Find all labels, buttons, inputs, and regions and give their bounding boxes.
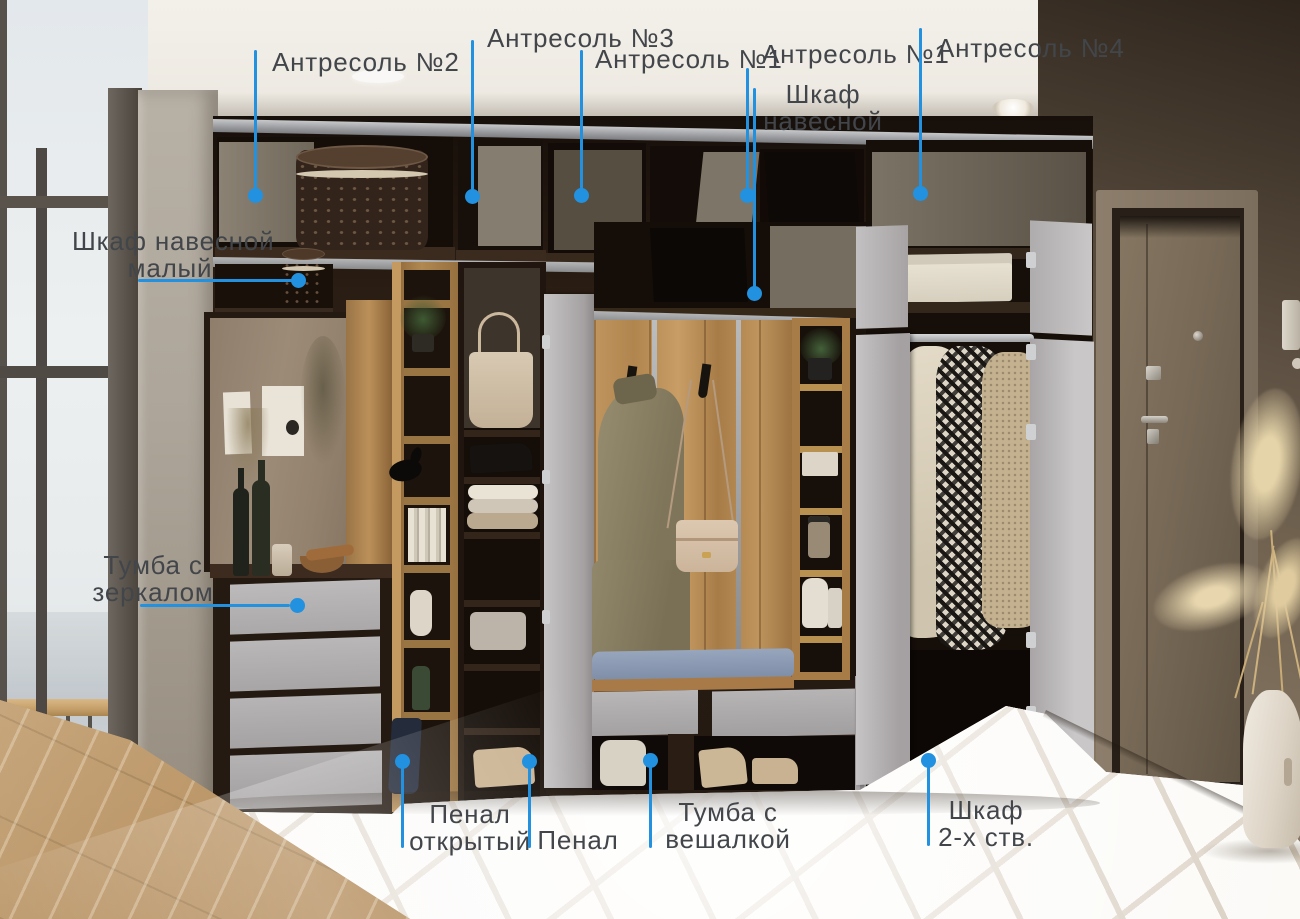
hatbox-small-lid — [282, 248, 325, 260]
cabinet-shelf-4 — [464, 600, 540, 607]
label-text: 2-х ств. — [938, 822, 1034, 852]
decor-bottle-1-neck — [238, 468, 244, 492]
shelf-vase-white — [410, 590, 432, 636]
folded-towels — [470, 612, 526, 650]
label-text: Антресоль №2 — [272, 47, 460, 77]
decor-bottle-2-neck — [258, 460, 265, 484]
knitwear-beige — [467, 513, 538, 529]
decor-bottle-2 — [252, 480, 270, 576]
wardrobe-door-right-upper[interactable] — [1030, 220, 1092, 335]
window-transom-mid — [0, 366, 110, 378]
wardrobe-door-left-upper[interactable] — [856, 225, 908, 329]
shelf-perfume — [808, 516, 830, 558]
callout-dot-shkaf-navesnoy-maly[interactable] — [291, 273, 306, 288]
label-text: Антресоль №4 — [937, 33, 1125, 63]
hanging-rail — [900, 334, 1034, 342]
wardrobe-hinge-2 — [1026, 344, 1036, 360]
label-text: Шкаф навесной — [72, 226, 274, 256]
wardrobe-hinge-4 — [1026, 632, 1036, 648]
beige-heels — [698, 746, 748, 789]
mirror-print-dot — [286, 420, 299, 435]
callout-line-penal — [528, 762, 531, 848]
metal-strip-2 — [736, 320, 741, 658]
callout-label-shkaf-navesnoy-maly: Шкаф навесной малый — [72, 228, 268, 282]
door-handle[interactable] — [1141, 416, 1168, 423]
wardrobe-door-left-lower[interactable] — [856, 333, 910, 785]
wall-round-fixture — [1292, 358, 1300, 369]
drawer-3[interactable] — [230, 693, 381, 748]
wardrobe-hinge-3 — [1026, 424, 1036, 440]
entry-door[interactable] — [1120, 216, 1240, 782]
label-text: открытый — [409, 826, 531, 856]
window-transom-top — [0, 196, 120, 208]
hall-shelf-b1 — [800, 384, 842, 391]
callout-label-penal: Пенал — [534, 827, 622, 854]
label-text: Пенал — [537, 825, 618, 855]
label-text: Антресоль №1 — [595, 44, 783, 74]
callout-label-shkaf-2h-stv: Шкаф 2-х ств. — [920, 797, 1052, 851]
callout-line-shkaf-navesnoy — [753, 88, 756, 288]
open-shelf-board-4 — [404, 497, 450, 505]
penal-door-hinge-1 — [542, 335, 550, 349]
callout-dot-antresol-3[interactable] — [465, 189, 480, 204]
cabinet-shelf-5 — [464, 664, 540, 671]
pampas-vase-handle — [1284, 758, 1292, 786]
door-lock-lower — [1147, 429, 1159, 444]
shelf-tulip-vase — [802, 578, 828, 628]
callout-label-antresol-1a: Антресоль №1 — [595, 46, 783, 73]
wall-cabinet-back-panel — [770, 226, 866, 310]
label-text: Тумба с — [103, 550, 202, 580]
crossbody-bag-clasp — [702, 552, 711, 558]
knitwear-gray — [468, 499, 538, 513]
label-text: Пенал — [429, 799, 510, 829]
door-peephole — [1193, 331, 1203, 341]
crossbody-bag-flap — [676, 538, 738, 541]
label-text: навесной — [763, 106, 883, 136]
callout-dot-antresol-1a[interactable] — [574, 188, 589, 203]
callout-line-antresol-2 — [254, 50, 257, 190]
door-lock-upper — [1146, 366, 1161, 380]
bench-drawer-right[interactable] — [712, 688, 858, 737]
window-frame-main — [108, 88, 142, 802]
shelf-candle — [828, 588, 842, 628]
callout-label-tumba-s-zerkalom: Тумба с зеркалом — [58, 552, 248, 606]
hall-shelf-b3 — [800, 508, 842, 515]
plant-top-pot — [412, 334, 434, 352]
mezzanine-2-back-panel — [478, 146, 541, 246]
mirror-plant-reflection — [300, 336, 346, 466]
door-top-shadow — [1120, 216, 1240, 238]
label-text: Тумба с — [678, 797, 777, 827]
open-shelf-board-3 — [404, 436, 450, 444]
hatbox-large-lid — [296, 145, 428, 169]
books — [408, 508, 446, 562]
window-frame-left — [0, 0, 7, 800]
open-shelf-board-2 — [404, 368, 450, 376]
callout-label-penal-otkryty: Пенал открытый — [400, 801, 540, 855]
drawer-1[interactable] — [230, 579, 380, 634]
callout-dot-shkaf-navesnoy[interactable] — [747, 286, 762, 301]
callout-dot-tumba-s-zerkalom[interactable] — [290, 598, 305, 613]
wardrobe-hinge-1 — [1026, 252, 1036, 268]
hatbox-large-band — [296, 170, 428, 178]
annotated-hallway-furniture-photo: Антресоль №2 Антресоль №3 Антресоль №1 А… — [0, 0, 1300, 919]
shelf-white-box — [802, 452, 838, 476]
label-text: Шкаф — [786, 79, 861, 109]
hall-shelf-b4 — [800, 570, 842, 577]
knitwear-white — [468, 485, 538, 499]
callout-label-tumba-s-veshalkoy: Тумба с вешалкой — [662, 799, 794, 853]
beige-sandals — [752, 758, 798, 784]
open-shelf-board-5 — [404, 565, 450, 573]
callout-line-antresol-1a — [580, 50, 583, 189]
callout-line-tumba-s-veshalkoy — [649, 761, 652, 848]
drawer-2[interactable] — [230, 636, 380, 691]
wall-keypad[interactable] — [1282, 300, 1300, 350]
cabinet-shelf-3 — [464, 532, 540, 539]
callout-line-antresol-1b — [746, 68, 749, 189]
shelf-plant-pot — [808, 358, 832, 380]
callout-dot-antresol-2[interactable] — [248, 188, 263, 203]
door-panel-groove — [1146, 224, 1148, 774]
oak-side-column — [346, 300, 392, 568]
handbag-body — [469, 352, 533, 428]
callout-dot-antresol-4[interactable] — [913, 186, 928, 201]
cabinet-shelf-2 — [464, 477, 540, 484]
hatbox-small-band — [282, 266, 325, 271]
callout-line-tumba-s-zerkalom — [140, 604, 290, 607]
storage-box-white — [900, 253, 1012, 303]
cabinet-shelf-1 — [464, 430, 540, 437]
label-text: Шкаф — [949, 795, 1024, 825]
black-shoes — [469, 442, 532, 473]
callout-label-antresol-2: Антресоль №2 — [272, 49, 460, 76]
penal-door-hinge-2 — [542, 470, 550, 484]
open-shelf-board-6 — [404, 640, 450, 648]
crossbody-bag — [676, 520, 738, 572]
label-text: вешалкой — [665, 824, 791, 854]
shelf-bottle-green — [412, 666, 430, 710]
penal-door-hinge-3 — [542, 610, 550, 624]
callout-label-shkaf-navesnoy: Шкаф навесной — [758, 81, 888, 135]
callout-line-antresol-3 — [471, 40, 474, 190]
hall-shelf-b5 — [800, 636, 842, 643]
wall-cabinet-black-case — [650, 228, 748, 302]
callout-label-antresol-4: Антресоль №4 — [937, 35, 1125, 62]
decor-candle — [272, 544, 292, 576]
callout-line-shkaf-navesnoy-maly — [138, 279, 296, 282]
callout-line-antresol-4 — [919, 28, 922, 188]
label-text: зеркалом — [92, 577, 213, 607]
window-frame-stile — [36, 148, 47, 800]
